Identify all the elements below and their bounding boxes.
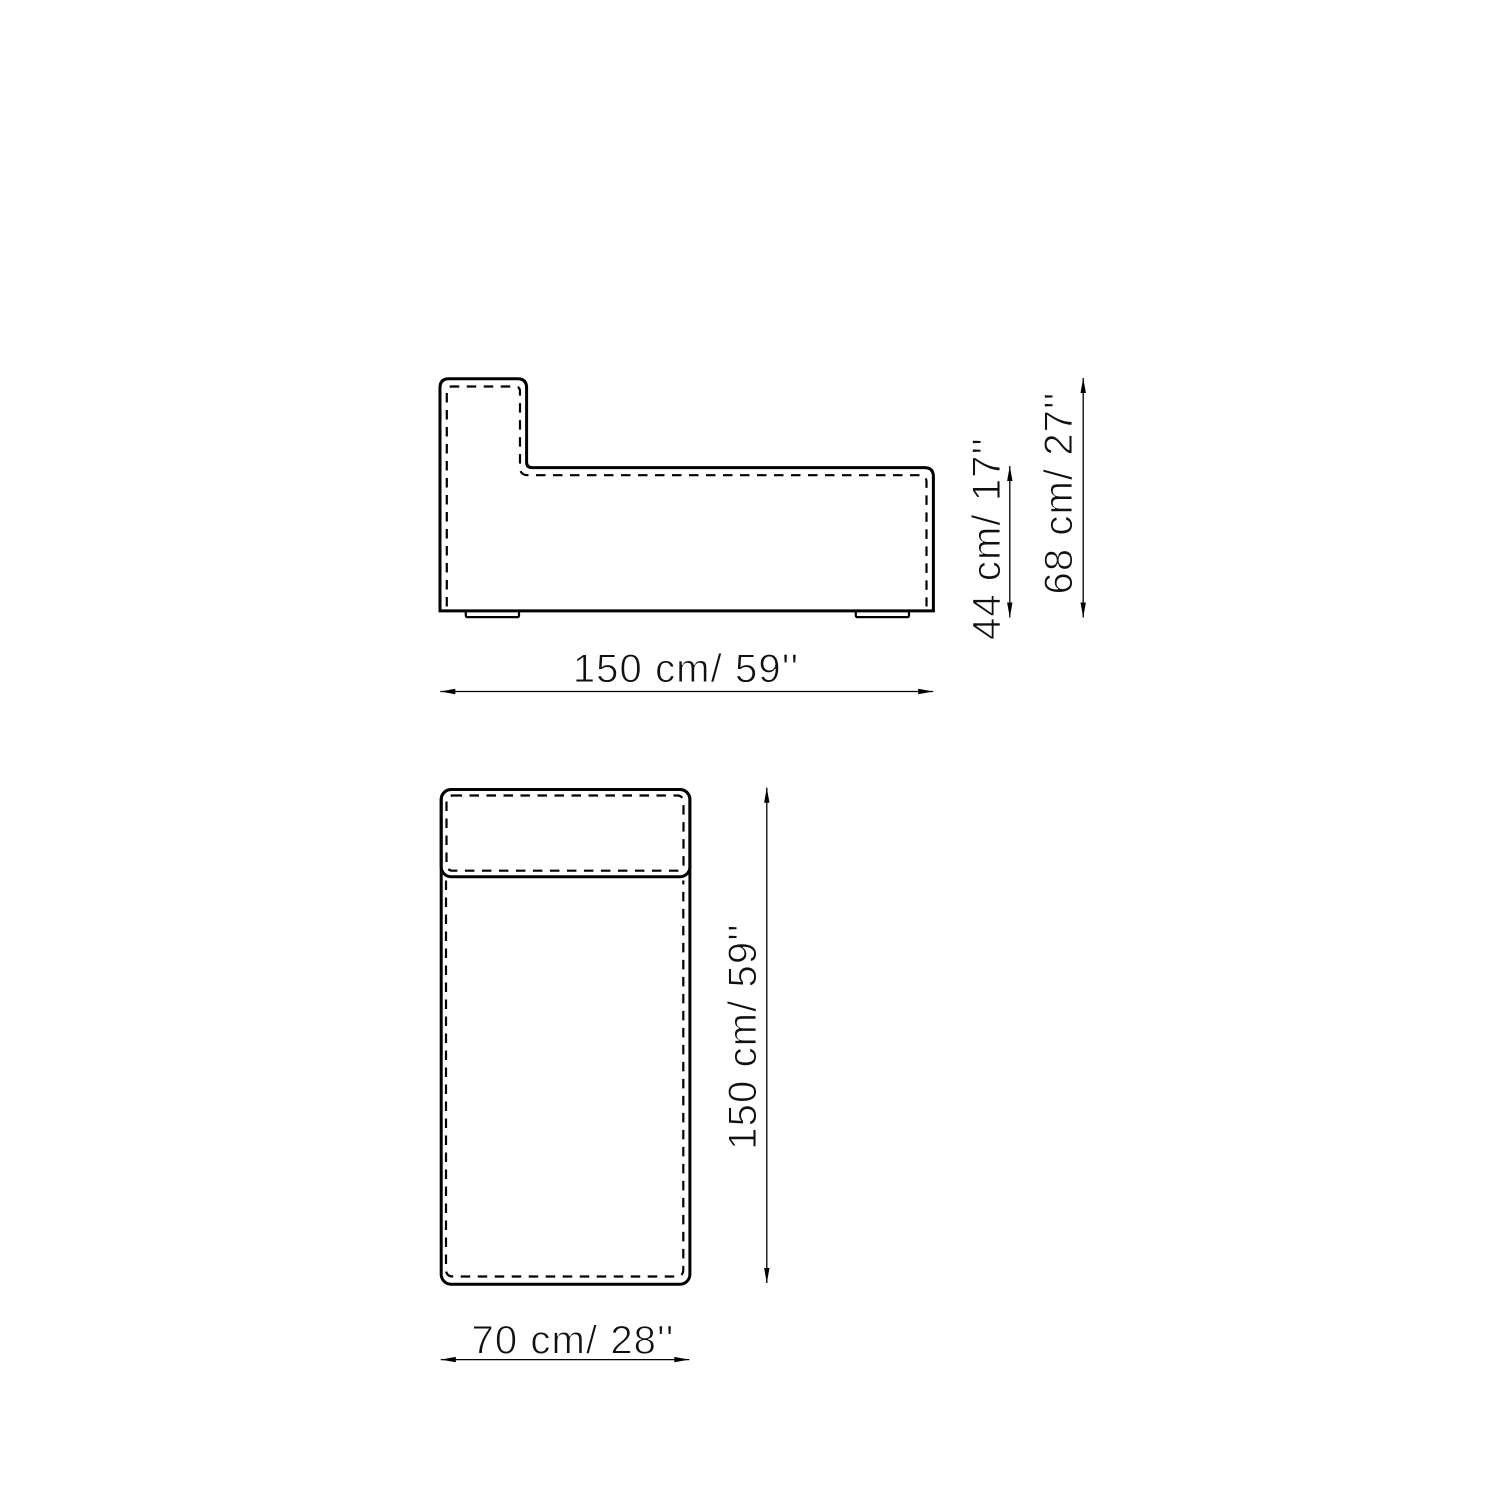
- svg-text:44 cm/ 17'': 44 cm/ 17'': [965, 437, 1009, 640]
- svg-text:150 cm/ 59'': 150 cm/ 59'': [573, 647, 799, 691]
- svg-text:150 cm/ 59'': 150 cm/ 59'': [721, 923, 765, 1149]
- svg-text:70 cm/ 28'': 70 cm/ 28'': [471, 1319, 674, 1363]
- svg-text:68 cm/ 27'': 68 cm/ 27'': [1037, 391, 1081, 594]
